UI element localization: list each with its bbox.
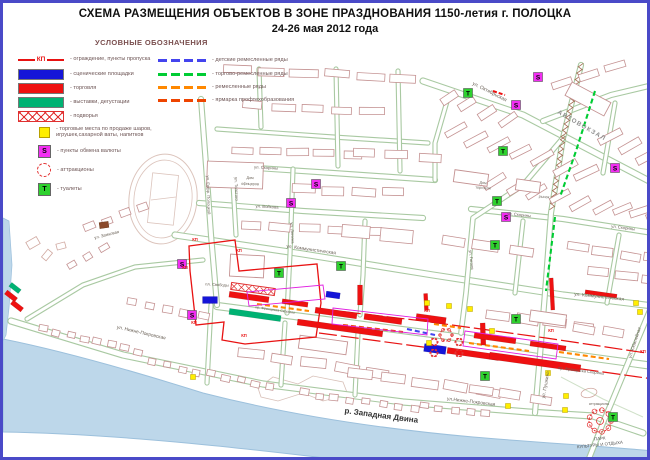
toilet-marker-letter: Т (277, 270, 281, 277)
craft-row-swatch (158, 86, 206, 89)
toilet-marker-letter: Т (483, 373, 487, 380)
building (567, 241, 589, 252)
building (299, 224, 320, 232)
building (573, 164, 599, 181)
building (67, 260, 77, 269)
building (486, 310, 510, 322)
building (342, 224, 371, 238)
building (469, 385, 493, 396)
trade-swatch (18, 83, 64, 94)
building (127, 298, 137, 306)
toilet-marker-letter: Т (611, 414, 615, 421)
building (148, 358, 156, 366)
building (39, 324, 49, 332)
building (325, 69, 350, 78)
toilet-marker-letter: Т (495, 198, 499, 205)
building (198, 311, 210, 320)
building (603, 326, 625, 338)
building (352, 187, 376, 197)
street-label: ул. Толстого (234, 177, 240, 202)
stadium-midline (151, 197, 176, 200)
building (260, 147, 281, 154)
place-label: торговли (475, 185, 491, 190)
building (322, 187, 344, 196)
attraction-cabin (456, 344, 458, 346)
street (281, 323, 285, 385)
large-building (229, 254, 264, 278)
building (591, 246, 613, 257)
building (509, 144, 531, 159)
stage-swatch (18, 69, 64, 80)
building (345, 397, 353, 404)
kiosk-marker (634, 301, 639, 306)
legend-item-trade-craft: - торгово-ремесленные ряды (158, 71, 288, 77)
checkpoint-label: КП (548, 328, 554, 333)
building (83, 221, 96, 232)
legend-header: УСЛОВНЫЕ ОБОЗНАЧЕНИЯ (95, 38, 208, 47)
attraction-cabin (431, 355, 433, 357)
currency-exchange-marker-letter: S (190, 312, 195, 319)
place-label: р. Западная Двина (344, 406, 419, 425)
street (336, 69, 338, 166)
legend-label: - подворья (70, 113, 98, 119)
legend-label: - торговля (70, 85, 96, 91)
kiosk-marker (506, 404, 511, 409)
map-scheme-page: SSSSSSSSТТТТТТТТТКПКПКПКПКПКПКПКПул. Окт… (0, 0, 650, 460)
trade-stall (416, 313, 447, 324)
castle-ruin-outline (41, 249, 52, 261)
building (98, 243, 109, 253)
building (615, 271, 638, 281)
building (419, 153, 441, 162)
street (217, 129, 428, 143)
river-western-dvina (3, 339, 650, 460)
currency-exchange-marker-letter: S (314, 181, 319, 188)
street-label: ул. Замковая (94, 229, 120, 240)
monument (99, 221, 109, 228)
building (618, 137, 642, 155)
attraction-cabin (435, 338, 437, 340)
legend-item-stage: - сценические площадки (18, 69, 134, 80)
trade-stall (10, 300, 23, 312)
building (329, 394, 338, 401)
legend-item-exhibition: - выставки, дегустации (18, 97, 129, 108)
legend-label: - торгово-ремесленные ряды (212, 71, 288, 77)
place-label: рынок (539, 195, 550, 200)
building (266, 383, 274, 391)
street-label: пр. Франциска Скорины (558, 365, 605, 376)
building (238, 348, 265, 359)
building (452, 407, 460, 414)
building (162, 305, 173, 314)
kiosk-marker (468, 307, 473, 312)
checkpoint-label: КП (182, 265, 188, 270)
legend-label: - пункты обмена валюты (57, 148, 121, 154)
toilet-marker-letter: Т (501, 148, 505, 155)
checkpoint-kp-text: КП (37, 56, 46, 63)
legend-label: - выставки, дегустации (70, 99, 129, 105)
trade-craft-row-swatch (158, 73, 206, 76)
street-casing (27, 260, 203, 319)
currency-exchange-marker-letter: S (289, 200, 294, 207)
street-label: ул. Пушкина (541, 370, 552, 398)
kiosk-marker (638, 310, 643, 315)
building (299, 388, 309, 396)
currency-exchange-marker-letter: S (613, 165, 618, 172)
building (593, 200, 614, 215)
toilet-marker-letter: Т (339, 263, 343, 270)
exhibition-swatch (18, 97, 64, 108)
building (83, 252, 93, 262)
building (359, 107, 384, 114)
building (269, 222, 291, 232)
building (588, 266, 609, 276)
attraction-cabin (435, 355, 437, 357)
building (353, 148, 374, 157)
kiosk-marker (427, 341, 432, 346)
stadium-field (147, 173, 178, 225)
vocational-fair-row-swatch (158, 99, 206, 102)
stage-area (203, 297, 218, 304)
building (272, 104, 296, 112)
building (316, 393, 324, 400)
building (381, 372, 406, 384)
stadium-track (130, 157, 196, 241)
building (641, 275, 650, 286)
kiosk-marker (563, 408, 568, 413)
legend-label: - ярмарка профтехобразования (212, 97, 294, 103)
building (287, 148, 309, 156)
attraction-cabin (460, 344, 462, 346)
toilet-marker-letter: Т (514, 316, 518, 323)
place-label: аттракционы (589, 402, 610, 406)
legend-item-trade: - торговля (18, 83, 96, 94)
building (643, 252, 650, 263)
page-title: СХЕМА РАЗМЕЩЕНИЯ ОБЪЕКТОВ В ЗОНЕ ПРАЗДНО… (3, 8, 647, 20)
checkpoint-label: КП (241, 333, 247, 338)
building (332, 107, 352, 115)
farmstead-swatch (18, 111, 64, 122)
checkpoint-label: КП (192, 237, 198, 242)
checkpoint-label: КП (640, 349, 646, 354)
building (357, 72, 385, 81)
checkpoint-label: КП (236, 248, 242, 253)
building (289, 69, 318, 78)
building (120, 344, 130, 352)
building (442, 235, 466, 247)
building (411, 405, 420, 412)
building (499, 388, 521, 400)
stadium-outer (124, 151, 201, 248)
currency-exchange-marker-letter: S (536, 74, 541, 81)
legend-item-toilet: Т - туалеты (18, 183, 82, 196)
checkpoint-line-segment (47, 59, 64, 61)
street (515, 221, 523, 293)
castle-ruin-outline (26, 237, 40, 250)
kiosk-marker (490, 329, 495, 334)
building (620, 251, 641, 262)
building (313, 149, 334, 156)
building (232, 147, 253, 154)
building (137, 202, 149, 212)
attractions-swatch (37, 163, 51, 177)
building (178, 366, 187, 374)
legend-label: - детские ремесленные ряды (212, 57, 288, 63)
toilet-swatch: Т (38, 183, 51, 196)
kiosk-marker (564, 394, 569, 399)
checkpoint-label: КП (191, 320, 197, 325)
building (362, 398, 371, 404)
legend-item-kiosk: - торговые места по продаже шаров, игруш… (18, 126, 184, 139)
building (464, 131, 489, 148)
place-label: Дом (479, 181, 487, 186)
building (569, 196, 591, 212)
building (302, 104, 323, 112)
building (390, 74, 416, 83)
place-label: Дом (246, 176, 254, 180)
building (80, 336, 90, 343)
page-subtitle: 24-26 мая 2012 года (3, 23, 647, 35)
building (119, 207, 131, 217)
legend-item-craft: - ремесленные ряды (158, 84, 266, 90)
currency-exchange-swatch: S (38, 145, 51, 158)
legend-label: - ремесленные ряды (212, 84, 266, 90)
kiosk-marker (191, 375, 196, 380)
street (27, 260, 203, 319)
building (434, 406, 442, 412)
building (467, 408, 475, 415)
building (163, 361, 171, 368)
building (477, 105, 496, 121)
legend-item-attractions: - аттракционы (18, 163, 94, 177)
kiosk-marker (425, 301, 430, 306)
children-craft-row-swatch (158, 59, 206, 62)
building (237, 376, 245, 383)
building (509, 245, 534, 257)
attraction-cabin (456, 355, 458, 357)
building (107, 340, 116, 348)
stage-area (326, 291, 341, 299)
trade-stall (358, 285, 363, 305)
legend-label: - аттракционы (57, 167, 94, 173)
checkpoint-line-segment (18, 59, 35, 61)
legend-item-farmstead: - подворья (18, 111, 98, 122)
building (380, 228, 414, 244)
building (420, 402, 429, 409)
trade-stall (549, 278, 555, 310)
building (394, 403, 402, 410)
legend-label: - торговые места по продаже шаров, игруш… (56, 126, 184, 139)
legend-item-checkpoint: КП - ограждение, пункты пропуска (18, 56, 150, 63)
building (604, 60, 626, 72)
legend-item-children-craft: - детские ремесленные ряды (158, 57, 288, 63)
street-label: ул. Нижне-Покровская (116, 324, 166, 341)
castle-ruin-outline (56, 242, 66, 250)
building (145, 302, 155, 310)
attraction-cabin (460, 355, 462, 357)
building (300, 357, 326, 369)
kiosk-swatch (39, 127, 50, 138)
large-building (515, 179, 540, 193)
building (385, 150, 408, 159)
attraction-cabin (431, 338, 433, 340)
building (67, 331, 76, 338)
checkpoint-line-swatch: КП (18, 56, 64, 63)
place-label: офицеров (241, 182, 259, 187)
building (382, 187, 403, 195)
building (380, 400, 388, 407)
place-label: пл. Свободы (205, 281, 229, 287)
legend-item-currency: S - пункты обмена валюты (18, 145, 121, 158)
legend-label: - сценические площадки (70, 71, 134, 77)
legend-item-vocational: - ярмарка профтехобразования (158, 97, 294, 103)
building (411, 378, 439, 390)
building (271, 353, 293, 365)
attraction-cabin (430, 352, 432, 354)
park-path (561, 377, 643, 417)
building (443, 379, 468, 393)
building (481, 410, 490, 417)
toilet-marker-letter: Т (466, 90, 470, 97)
kiosk-marker (447, 304, 452, 309)
attraction-cabin (455, 341, 457, 343)
building (206, 369, 215, 376)
currency-exchange-marker-letter: S (514, 102, 519, 109)
building (635, 147, 650, 166)
building (498, 111, 518, 127)
legend-label: - ограждение, пункты пропуска (70, 56, 150, 62)
building (445, 122, 468, 138)
toilet-marker-letter: Т (493, 242, 497, 249)
checkpoint-label: КП (424, 308, 430, 313)
building (241, 221, 260, 230)
legend-label: - туалеты (57, 186, 82, 192)
